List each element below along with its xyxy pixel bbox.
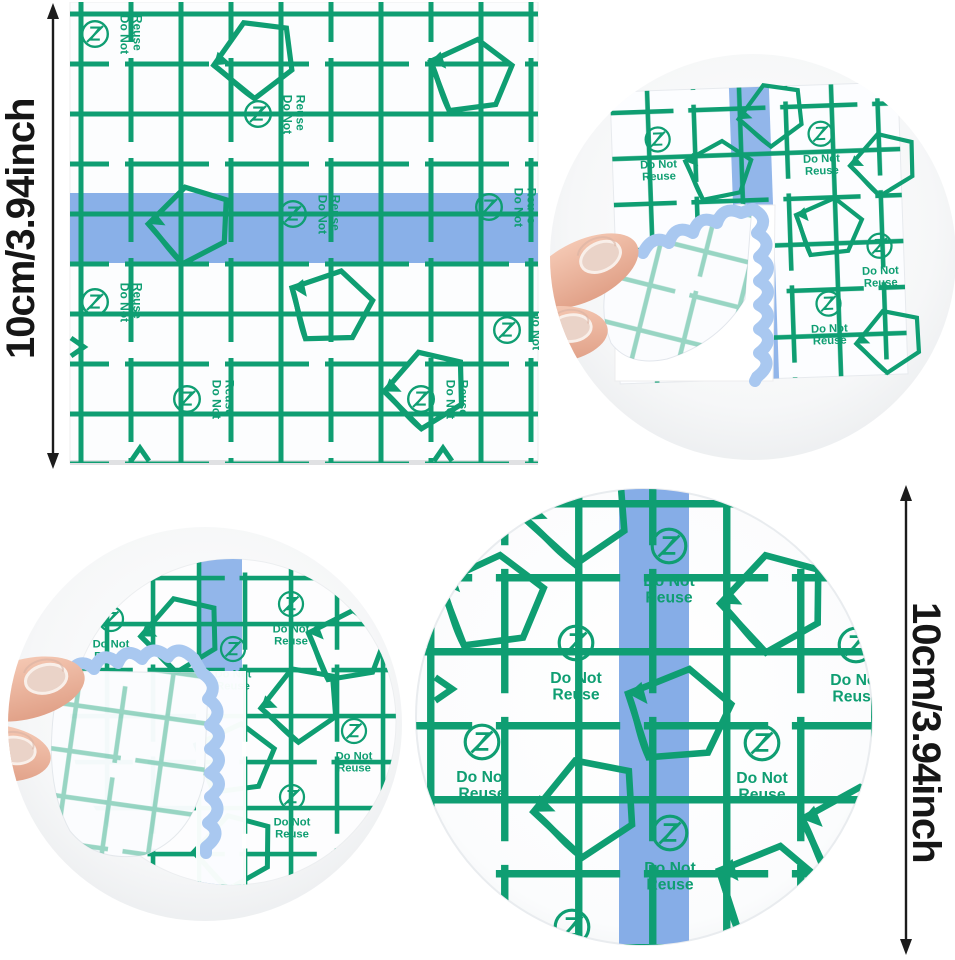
arrowhead-down	[900, 939, 912, 955]
dimension-label-left: 10cm/3.94inch	[0, 119, 43, 359]
peeling-square-photo	[549, 51, 955, 463]
dimension-label-right: 10cm/3.94inch	[904, 602, 948, 842]
round-film-panel	[413, 486, 875, 948]
product-image: Do Not Reuse Do Not Reuse 10cm/3.94inch	[0, 0, 955, 960]
peeling-round-photo	[4, 521, 406, 923]
arrowhead-up	[47, 3, 59, 19]
arrowhead-up	[900, 485, 912, 501]
arrowhead-down	[47, 453, 59, 469]
square-film-panel	[69, 2, 539, 467]
dimension-arrow-left	[40, 2, 66, 470]
